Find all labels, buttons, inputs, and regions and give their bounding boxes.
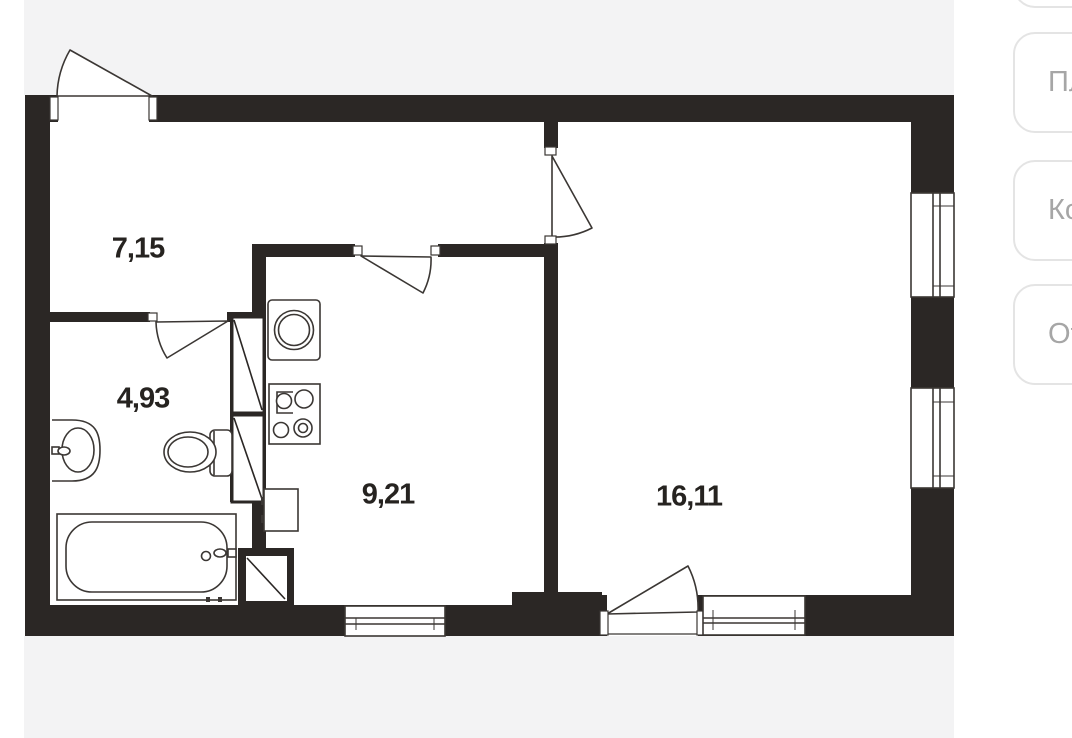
bathroom-sink <box>52 420 100 481</box>
kitchen-living-wall <box>544 243 558 592</box>
window-right-upper <box>911 193 954 297</box>
shaft-pillar <box>246 556 287 601</box>
entry-jamb-left <box>50 97 58 120</box>
balcony-door-swing <box>607 566 698 614</box>
room-label-kitchen: 9,21 <box>362 479 414 512</box>
stove <box>269 384 320 444</box>
room-label-hallway: 7,15 <box>112 233 164 266</box>
right-wall <box>911 95 954 636</box>
side-button-3-label: От <box>1048 318 1072 351</box>
shaft-box-upper <box>232 317 264 413</box>
kitchen-jamb-left <box>353 246 362 255</box>
left-wall <box>25 95 50 636</box>
toilet <box>164 430 232 476</box>
living-jamb-top <box>545 147 556 155</box>
living-room-door-swing <box>552 156 592 237</box>
floor-plan-canvas <box>0 0 1072 738</box>
kitchen-door-swing <box>361 256 431 293</box>
bathroom-jamb <box>148 313 157 321</box>
kitchen-sink-cabinet <box>261 489 298 531</box>
kitchen-top-wall-left <box>252 244 355 257</box>
kitchen-top-wall-right <box>438 244 557 257</box>
bathroom-door-swing <box>156 321 228 358</box>
side-button-3[interactable]: От <box>1013 284 1072 385</box>
living-wall-top-stub <box>544 122 558 148</box>
windows <box>345 193 954 636</box>
bathtub <box>57 514 236 602</box>
side-button-2-label: Ко <box>1048 194 1072 227</box>
kitchen-jamb-right <box>431 246 440 255</box>
top-wall-main <box>149 95 954 122</box>
window-living-room <box>703 596 805 635</box>
floor-plan-page: { "plan": { "rooms": [ {"id": "hallway",… <box>0 0 1072 738</box>
side-button-1[interactable]: Пл <box>1013 32 1072 133</box>
window-kitchen <box>345 606 445 636</box>
room-label-living-room: 16,11 <box>656 481 722 514</box>
side-button-1-label: Пл <box>1048 66 1072 99</box>
living-jamb-bottom <box>545 236 556 244</box>
side-button-2[interactable]: Ко <box>1013 160 1072 261</box>
floor-plan: 7,15 4,93 9,21 16,11 <box>0 0 1072 738</box>
room-label-bathroom: 4,93 <box>117 383 169 416</box>
window-right-lower <box>911 388 954 488</box>
balcony-jamb-left <box>600 611 608 635</box>
washing-machine <box>268 300 320 360</box>
shaft-box-lower <box>232 415 264 502</box>
bathroom-top-wall <box>50 312 150 322</box>
bottom-wall-block <box>512 592 602 636</box>
entry-jamb-right <box>149 97 157 120</box>
